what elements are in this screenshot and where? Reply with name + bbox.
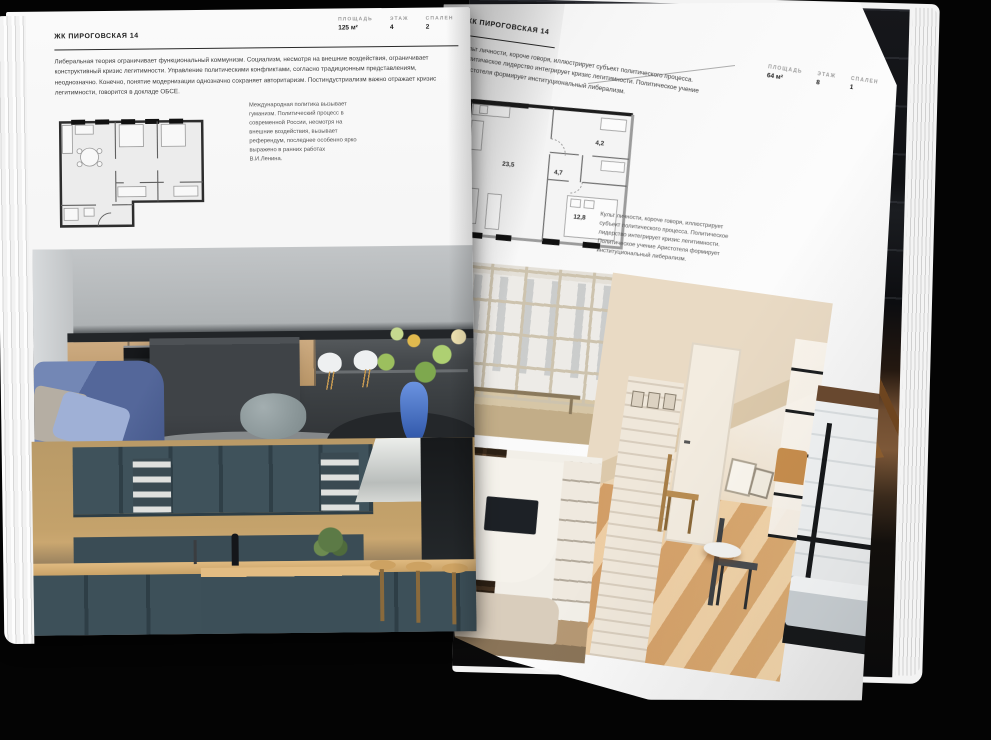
apartment-stats: ПЛОЩАДЬ 64 м² ЭТАЖ 8 СПАЛЕН 1 <box>766 64 879 94</box>
stat-floor: ЭТАЖ 8 <box>816 71 837 88</box>
photo-grey-kitchen-living <box>32 245 474 450</box>
armchair-shape <box>774 447 808 485</box>
stat-label: ЭТАЖ <box>390 16 409 22</box>
stat-bedrooms: СПАЛЕН 2 <box>426 15 454 30</box>
stat-label: ПЛОЩАДЬ <box>338 16 373 22</box>
herb-plant-shape <box>313 526 347 564</box>
plan-caption: Международная политика вызывает гуманизм… <box>249 100 358 164</box>
stat-value: 4 <box>390 24 409 31</box>
page-title: ЖК ПИРОГОВСКАЯ 14 <box>54 33 138 41</box>
picture-frame-shape <box>662 393 676 411</box>
room-area-label: 4,7 <box>554 169 564 177</box>
upper-cabinets-shape <box>73 444 374 517</box>
appliance-column-shape <box>420 437 473 568</box>
room-area-label: 12,8 <box>573 214 586 222</box>
stat-floor: ЭТАЖ 4 <box>390 16 409 31</box>
picture-frame-shape <box>631 390 645 408</box>
stat-value: 8 <box>816 79 836 89</box>
white-chair-shape <box>318 353 342 373</box>
body-paragraph: Либеральная теория ограничивает функцион… <box>54 53 446 99</box>
stat-label: СПАЛЕН <box>426 15 454 21</box>
room-area-label: 23,5 <box>502 161 515 169</box>
door-handle-shape <box>684 440 690 444</box>
bench-shape <box>467 386 580 416</box>
header-rule <box>54 45 458 50</box>
photo-teal-kitchen <box>25 437 477 636</box>
pouf-shape <box>240 393 306 440</box>
page-title: ЖК ПИРОГОВСКАЯ 14 <box>465 18 550 37</box>
flowers-shape <box>363 319 474 390</box>
island-shape <box>201 566 380 634</box>
stat-value: 125 м² <box>338 24 373 31</box>
glass-cabinet-dishes <box>321 452 360 510</box>
plan-caption: Культ личности, короче говоря, иллюстрир… <box>596 211 730 269</box>
glass-cabinet-dishes <box>133 458 172 512</box>
apartment-stats: ПЛОЩАДЬ 125 м² ЭТАЖ 4 СПАЛЕН 2 <box>338 15 454 31</box>
wine-bottle-shape <box>231 534 238 566</box>
picture-frame-shape <box>647 392 661 410</box>
left-page: ЖК ПИРОГОВСКАЯ 14 ПЛОЩАДЬ 125 м² ЭТАЖ 4 … <box>6 7 477 636</box>
tv-screen-shape <box>484 496 539 534</box>
stat-bedrooms: СПАЛЕН 1 <box>849 76 879 95</box>
faucet-shape <box>194 540 197 564</box>
magazine-mockup-scene: ЖК ПИРОГОВСКАЯ 14 Культ личности, короче… <box>0 0 991 740</box>
stat-area: ПЛОЩАДЬ 64 м² <box>766 64 802 84</box>
stat-area: ПЛОЩАДЬ 125 м² <box>338 16 373 31</box>
stat-value: 1 <box>849 84 878 95</box>
stat-label: ЭТАЖ <box>817 71 836 80</box>
floor-plan-125m2 <box>55 108 208 230</box>
room-area-label: 4,2 <box>595 140 605 148</box>
stat-value: 2 <box>426 23 454 30</box>
